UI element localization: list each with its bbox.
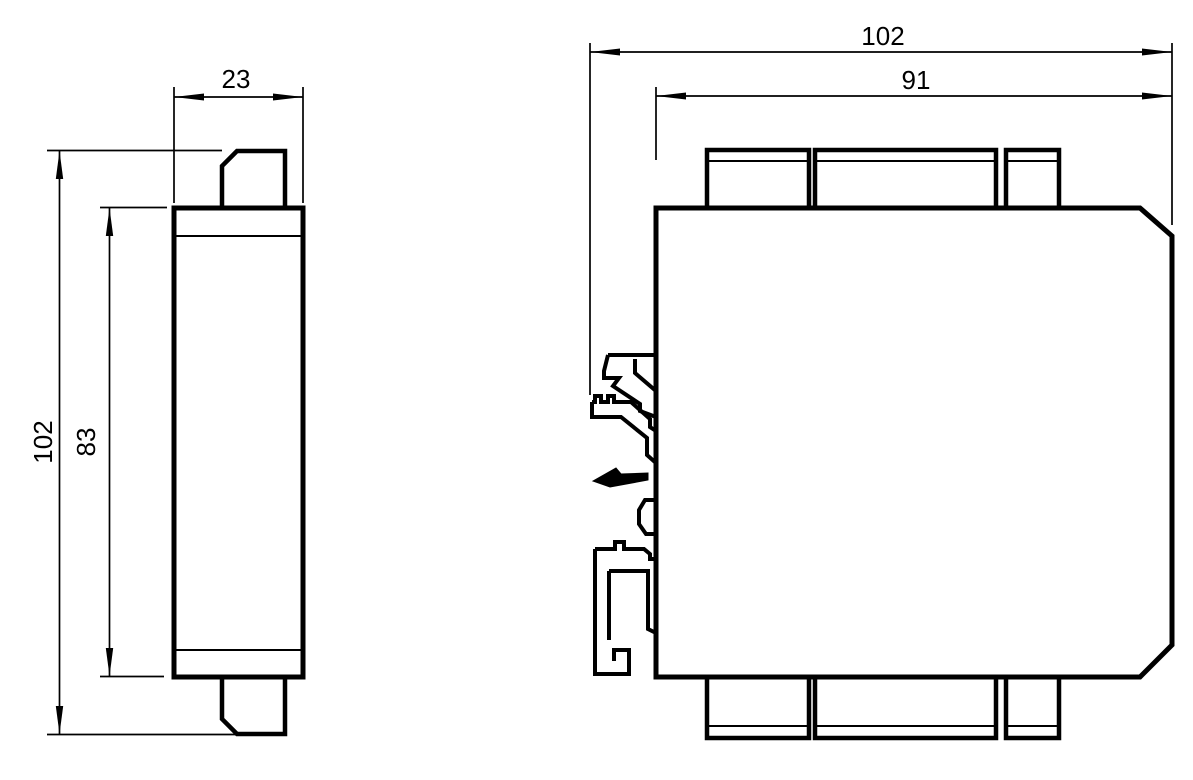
dim-side-overall-height-label: 102 [28,420,58,463]
dim-front-body-width-label: 91 [902,65,931,95]
dim-side-body-height-label: 83 [71,428,101,457]
dim-side-width-label: 23 [222,64,251,94]
dimension-drawing: 23 102 83 [0,0,1193,780]
drawing-canvas: 23 102 83 [0,0,1193,780]
dim-front-overall-width-label: 102 [861,21,904,51]
